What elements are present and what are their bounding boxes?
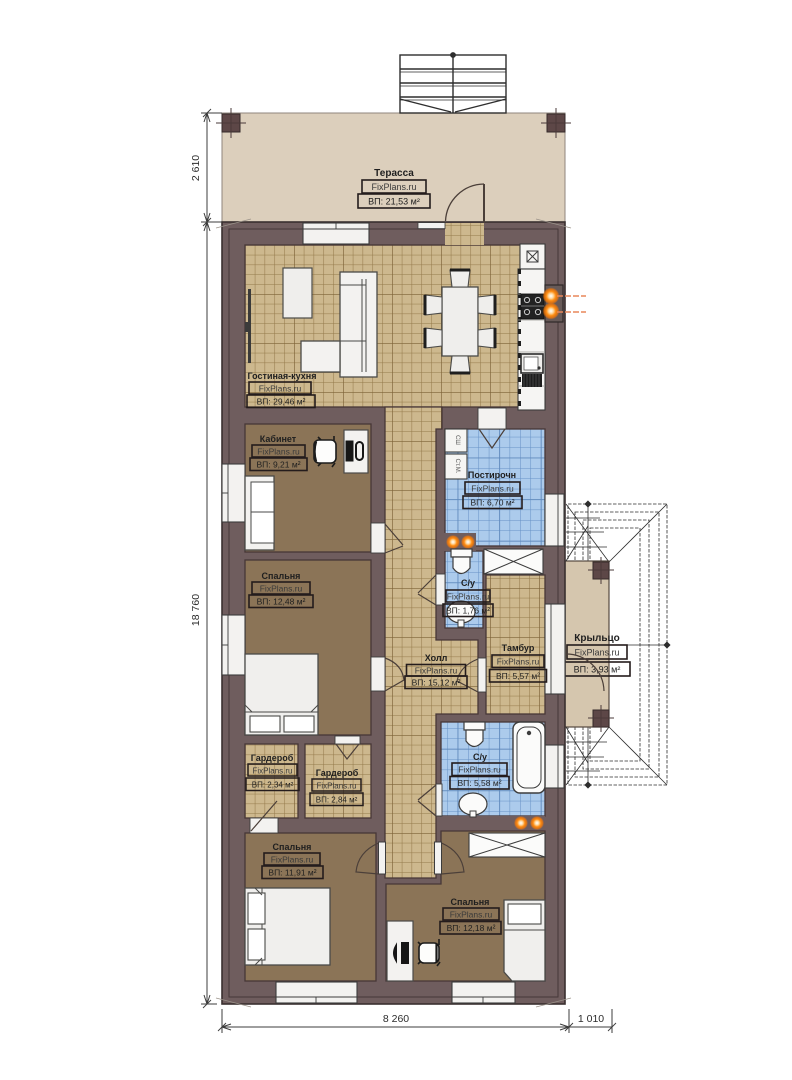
svg-text:ВП: 21,53 м²: ВП: 21,53 м²	[368, 197, 420, 207]
svg-text:FixPlans.ru: FixPlans.ru	[271, 855, 314, 865]
svg-text:FixPlans.ru: FixPlans.ru	[257, 447, 300, 457]
svg-text:Спальня: Спальня	[451, 897, 490, 907]
svg-text:Ст.М.: Ст.М.	[454, 459, 460, 474]
svg-text:Холл: Холл	[425, 653, 448, 663]
svg-text:ВП: 12,18 м²: ВП: 12,18 м²	[447, 923, 496, 933]
svg-text:FixPlans.ru: FixPlans.ru	[316, 782, 356, 791]
svg-text:FixPlans.ru: FixPlans.ru	[415, 666, 458, 676]
svg-text:ВП: 5,58 м²: ВП: 5,58 м²	[457, 778, 501, 788]
svg-text:FixPlans.ru: FixPlans.ru	[471, 484, 514, 494]
svg-text:Крыльцо: Крыльцо	[574, 633, 620, 644]
svg-text:ВП: 6,70 м²: ВП: 6,70 м²	[470, 498, 514, 508]
svg-text:ВП: 15,12 м²: ВП: 15,12 м²	[412, 678, 461, 688]
svg-text:СШ: СШ	[454, 435, 460, 445]
svg-text:1 010: 1 010	[578, 1013, 604, 1025]
svg-text:FixPlans.ru: FixPlans.ru	[259, 384, 302, 394]
svg-text:ВП: 1,76 м²: ВП: 1,76 м²	[446, 606, 490, 616]
svg-text:FixPlans.ru: FixPlans.ru	[371, 182, 416, 192]
svg-text:Терасса: Терасса	[374, 168, 414, 179]
svg-text:ВП: 9,21 м²: ВП: 9,21 м²	[256, 460, 300, 470]
svg-text:FixPlans.ru: FixPlans.ru	[450, 910, 493, 920]
svg-text:FixPlans.ru: FixPlans.ru	[458, 765, 501, 775]
svg-text:FixPlans.ru: FixPlans.ru	[252, 767, 292, 776]
svg-text:Тамбур: Тамбур	[502, 643, 535, 653]
svg-text:Постирочн: Постирочн	[468, 470, 516, 480]
svg-text:FixPlans.ru: FixPlans.ru	[574, 648, 619, 658]
svg-text:2 610: 2 610	[190, 155, 202, 181]
svg-text:ВП: 2,84 м²: ВП: 2,84 м²	[316, 796, 358, 805]
svg-text:ВП: 2,34 м²: ВП: 2,34 м²	[252, 781, 294, 790]
svg-text:18 760: 18 760	[190, 594, 202, 626]
svg-text:ВП: 5,57 м²: ВП: 5,57 м²	[496, 671, 540, 681]
svg-text:8 260: 8 260	[383, 1013, 409, 1025]
svg-text:ВП: 12,48 м²: ВП: 12,48 м²	[257, 597, 306, 607]
svg-text:Гостиная-кухня: Гостиная-кухня	[248, 371, 317, 381]
svg-text:Гардероб: Гардероб	[251, 753, 294, 763]
svg-text:FixPlans.ru: FixPlans.ru	[260, 584, 303, 594]
svg-text:Гардероб: Гардероб	[316, 768, 359, 778]
svg-text:С/у: С/у	[461, 578, 475, 588]
svg-text:ВП: 29,46 м²: ВП: 29,46 м²	[257, 397, 306, 407]
svg-text:Кабинет: Кабинет	[260, 434, 297, 444]
svg-text:FixPlans.ru: FixPlans.ru	[447, 592, 490, 602]
svg-text:FixPlans.ru: FixPlans.ru	[497, 657, 540, 667]
svg-text:С/у: С/у	[473, 752, 487, 762]
svg-text:ВП: 11,91 м²: ВП: 11,91 м²	[268, 868, 316, 878]
svg-text:Спальня: Спальня	[273, 842, 312, 852]
svg-text:Спальня: Спальня	[262, 571, 301, 581]
